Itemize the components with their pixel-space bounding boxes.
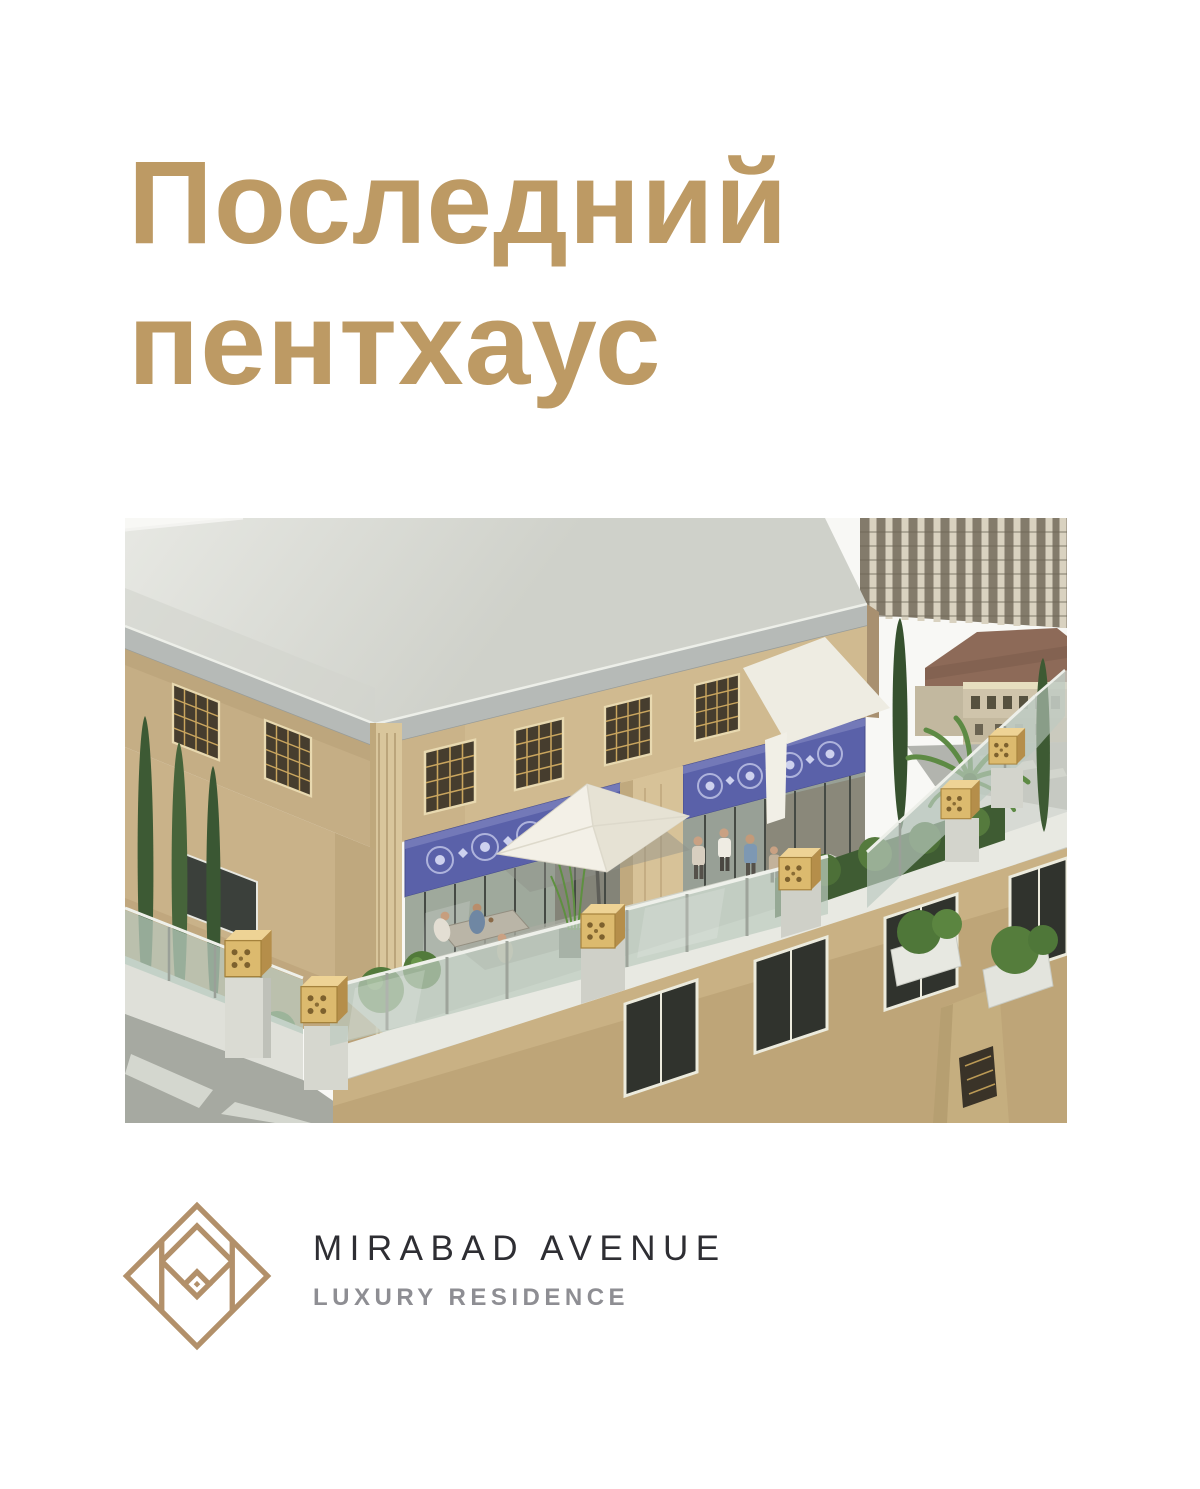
- promo-page: Последний пентхаус: [0, 0, 1200, 1489]
- penthouse-render-image: [125, 518, 1067, 1123]
- brand-name: MIRABAD AVENUE: [313, 1229, 727, 1269]
- brand-tagline: LUXURY RESIDENCE: [313, 1284, 629, 1312]
- headline: Последний пентхаус: [128, 133, 1008, 415]
- diamond-monogram-m-icon: [115, 1194, 279, 1358]
